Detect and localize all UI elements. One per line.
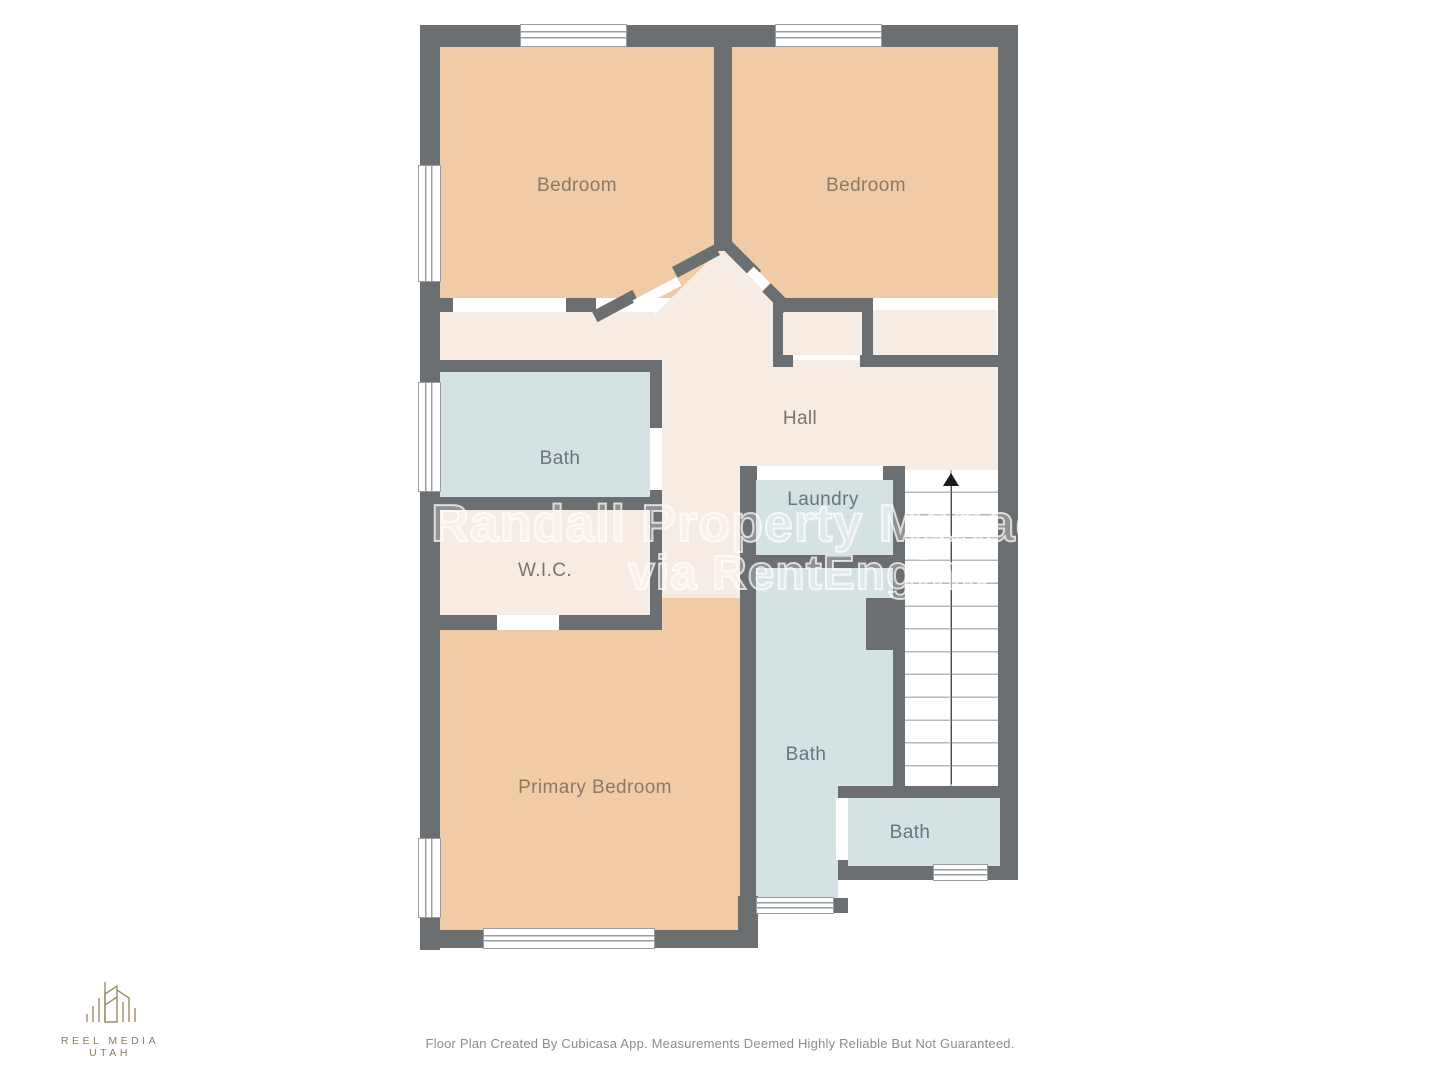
window-bottom-primary bbox=[483, 928, 655, 949]
wall-bath-lr-bottom bbox=[838, 866, 1018, 880]
room-label-bedroom-left: Bedroom bbox=[537, 175, 617, 197]
window-top-left bbox=[520, 24, 627, 47]
staircase bbox=[903, 470, 1000, 790]
window-top-right bbox=[775, 24, 882, 47]
hall-main-fill bbox=[662, 360, 998, 470]
wall-center-left bbox=[740, 466, 756, 948]
room-label-bath-upper: Bath bbox=[540, 448, 581, 470]
wall-bath-upper-bottom bbox=[420, 497, 662, 510]
door-bath-lr bbox=[836, 798, 848, 860]
wall-wic-right bbox=[650, 510, 662, 630]
window-left-primary bbox=[418, 838, 441, 918]
wall-bath-lr-top bbox=[838, 786, 1018, 798]
opening-laundry bbox=[757, 466, 883, 480]
bath-upper-fill bbox=[440, 372, 650, 497]
primary-bedroom-fill bbox=[440, 598, 756, 930]
room-label-bath-middle: Bath bbox=[786, 744, 827, 766]
wall-bath-lr-right bbox=[1000, 786, 1018, 880]
opening-closet-b bbox=[875, 298, 998, 310]
door-bath-upper bbox=[650, 428, 662, 490]
wall-closets-bottom bbox=[860, 355, 1013, 367]
wall-primary-jog bbox=[738, 896, 758, 948]
window-bath-lower-right bbox=[933, 864, 988, 881]
wall-bath-upper-top bbox=[420, 360, 662, 372]
room-label-wic: W.I.C. bbox=[518, 560, 572, 582]
hall-corridor-fill bbox=[662, 470, 740, 598]
wall-bedroom-divider bbox=[714, 25, 732, 251]
room-label-bath-lower-right: Bath bbox=[890, 822, 931, 844]
bedroom-left-fill bbox=[440, 47, 714, 298]
wall-right bbox=[998, 25, 1018, 790]
wall-bath-middle-block bbox=[866, 598, 905, 650]
room-label-hall: Hall bbox=[783, 408, 817, 430]
closet-b-fill bbox=[873, 310, 997, 355]
room-label-primary-bedroom: Primary Bedroom bbox=[518, 777, 672, 799]
door-wic bbox=[497, 615, 559, 630]
room-label-bedroom-right: Bedroom bbox=[826, 175, 906, 197]
stairs-up-arrow-icon bbox=[943, 473, 959, 486]
wall-bedroom-left-bottom-b bbox=[566, 298, 596, 312]
bedroom-left-closet-fill bbox=[440, 312, 655, 360]
floor-plan: Bedroom Bedroom Bath Hall Laundry W.I.C.… bbox=[0, 0, 1440, 1080]
window-bath-middle bbox=[756, 897, 834, 914]
stairs-direction-line bbox=[951, 484, 953, 784]
opening-bedroom-left-closet bbox=[453, 298, 566, 312]
wall-closet-a-stub bbox=[773, 355, 793, 367]
wall-laundry-bottom bbox=[740, 555, 905, 568]
footer-disclaimer: Floor Plan Created By Cubicasa App. Meas… bbox=[0, 1036, 1440, 1051]
wall-bedroom-left-bottom-a bbox=[420, 298, 453, 312]
room-label-laundry: Laundry bbox=[787, 489, 858, 511]
window-left-bath bbox=[418, 382, 441, 492]
window-left-bedroom bbox=[418, 165, 441, 282]
logo-house-icon bbox=[71, 978, 149, 1028]
bedroom-right-fill bbox=[732, 47, 998, 298]
wall-bedroom-right-bottom bbox=[773, 298, 873, 312]
closet-a-fill bbox=[783, 310, 862, 355]
